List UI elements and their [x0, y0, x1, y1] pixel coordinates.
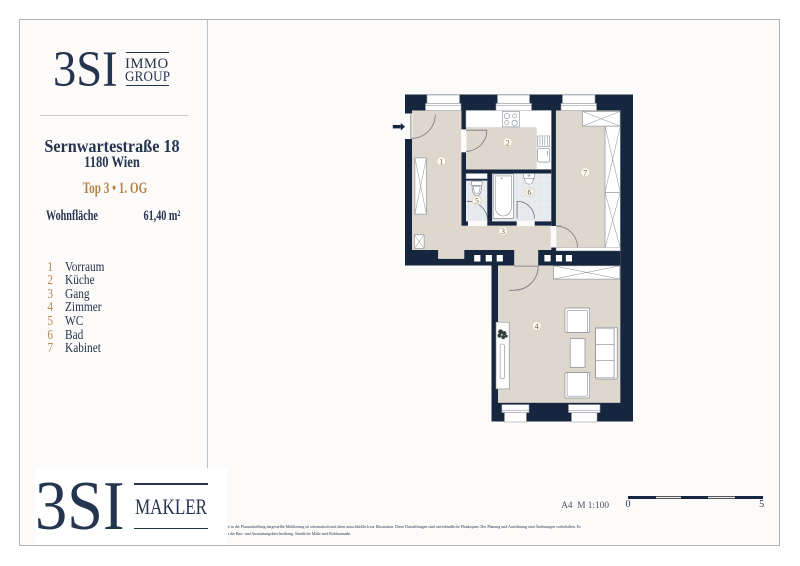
- svg-text:1: 1: [439, 157, 443, 166]
- svg-text:7: 7: [583, 168, 587, 177]
- svg-text:5: 5: [475, 197, 479, 206]
- svg-text:2: 2: [506, 138, 510, 147]
- svg-text:3: 3: [501, 227, 505, 236]
- svg-text:6: 6: [527, 188, 531, 197]
